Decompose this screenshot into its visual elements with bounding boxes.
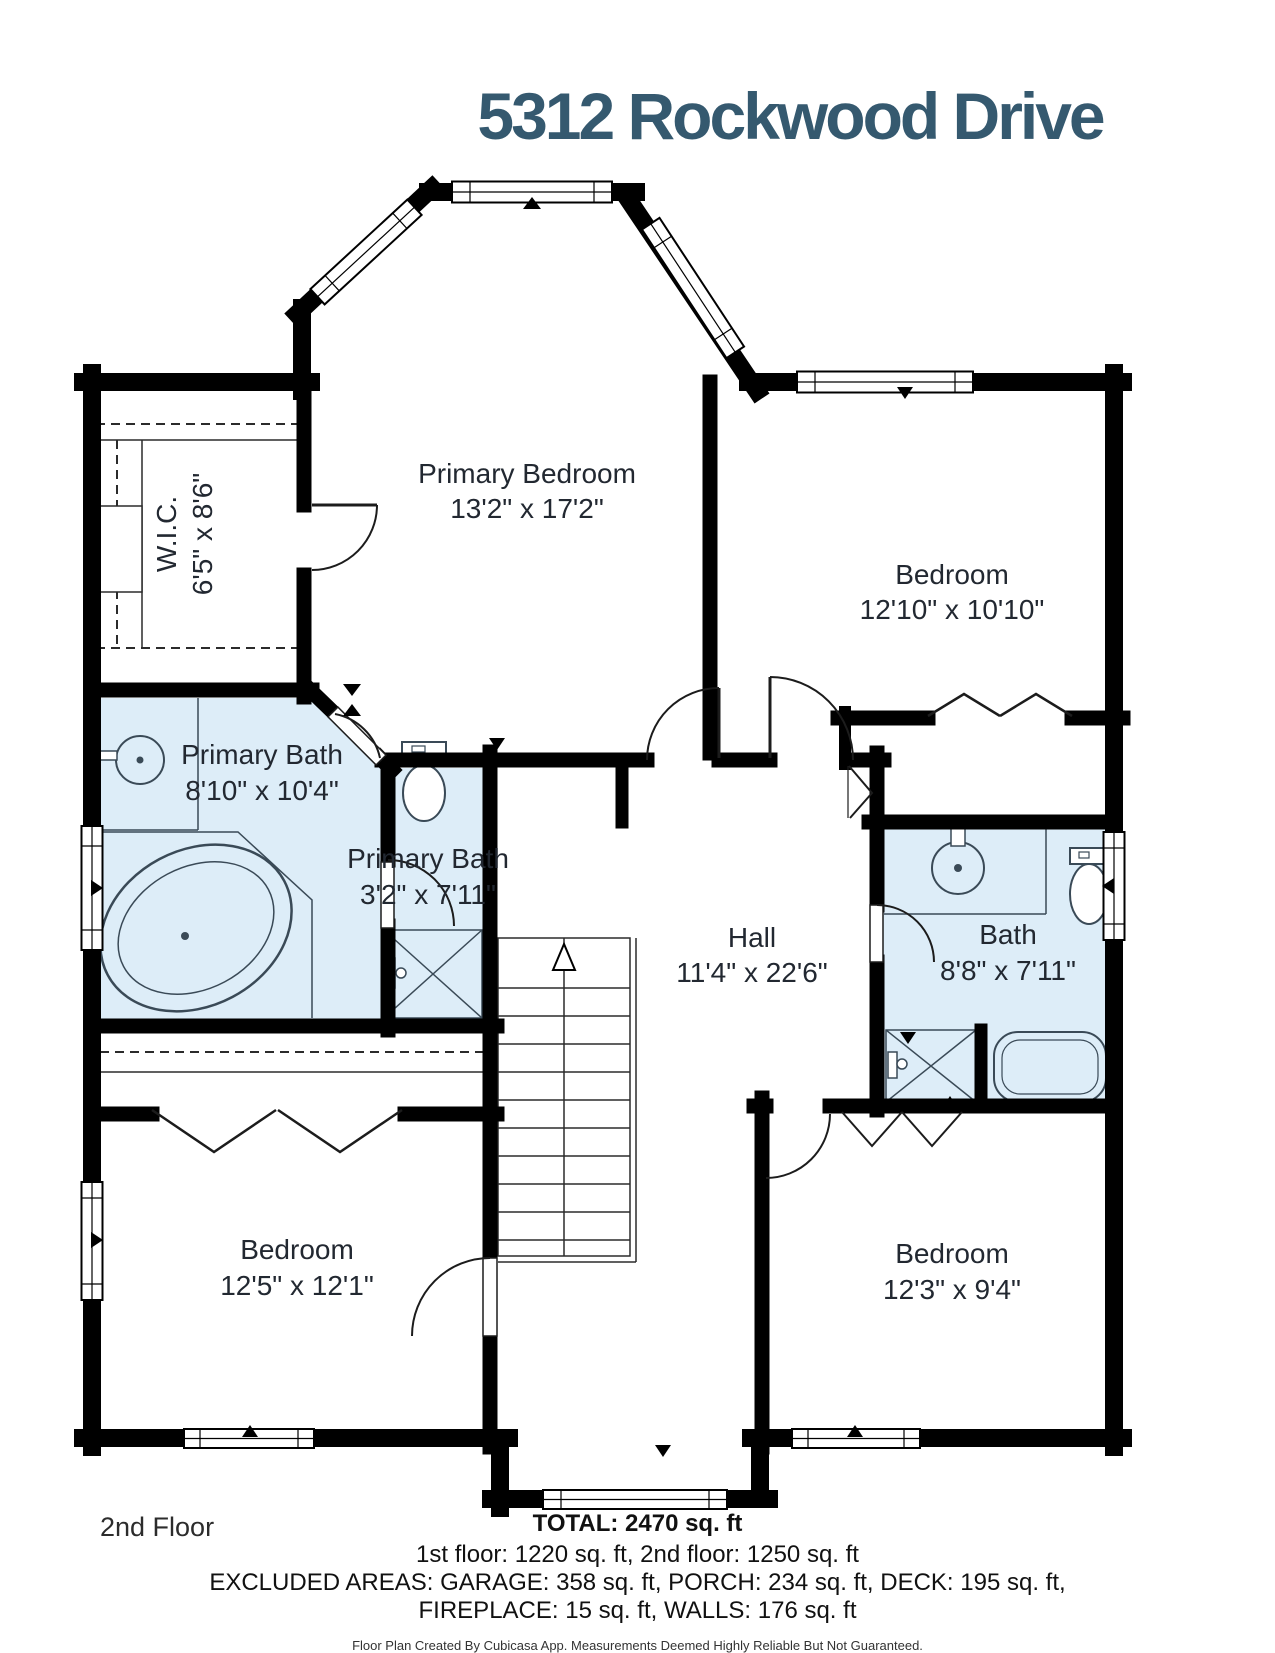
- room-label-bath: Bath: [979, 919, 1037, 950]
- window-bay-left: [310, 200, 421, 305]
- closet-doors-bedroom-bl: [152, 1110, 402, 1152]
- room-dims-bedroom-tr: 12'10" x 10'10": [860, 594, 1045, 625]
- door-wic: [312, 505, 377, 570]
- excluded-areas-1: EXCLUDED AREAS: GARAGE: 358 sq. ft, PORC…: [0, 1571, 1275, 1595]
- room-label-primary-bath: Primary Bath: [181, 739, 343, 770]
- disclaimer: Floor Plan Created By Cubicasa App. Meas…: [0, 1639, 1275, 1652]
- room-dims-hall: 11'4" x 22'6": [676, 957, 827, 988]
- toilet-icon: [1070, 864, 1108, 924]
- staircase: [498, 938, 636, 1262]
- room-dims-primary-bath2: 3'2" x 7'11": [360, 879, 496, 910]
- bifold-door: [848, 766, 872, 818]
- window-bay-right: [642, 218, 744, 358]
- stairs-up-arrow-icon: [553, 944, 575, 970]
- room-label-wic: W.I.C.: [151, 496, 182, 572]
- closet-doors-bedroom-tr: [928, 694, 1072, 716]
- room-dims-primary-bath: 8'10" x 10'4": [185, 775, 339, 806]
- room-dims-bath: 8'8" x 7'11": [940, 955, 1076, 986]
- room-label-bedroom-bl: Bedroom: [240, 1234, 354, 1265]
- shower-valve-icon: [888, 1052, 897, 1078]
- room-label-hall: Hall: [728, 922, 776, 953]
- room-label-bedroom-br: Bedroom: [895, 1238, 1009, 1269]
- closet-doors-bedroom-br: [842, 1112, 962, 1146]
- floor-areas: 1st floor: 1220 sq. ft, 2nd floor: 1250 …: [0, 1543, 1275, 1567]
- room-label-primary-bedroom: Primary Bedroom: [418, 458, 636, 489]
- window-hall-bottom: [543, 1490, 727, 1509]
- room-dims-bedroom-bl: 12'5" x 12'1": [220, 1270, 374, 1301]
- closet-band: [100, 1052, 488, 1072]
- door-bedroom-br: [766, 1114, 830, 1178]
- area-summary: TOTAL: 2470 sq. ft 1st floor: 1220 sq. f…: [0, 1512, 1275, 1652]
- room-label-bedroom-tr: Bedroom: [895, 559, 1009, 590]
- window-bedroom-tr-top: [797, 372, 973, 393]
- excluded-areas-2: FIREPLACE: 15 sq. ft, WALLS: 176 sq. ft: [0, 1599, 1275, 1623]
- floor-plan: Primary Bedroom 13'2" x 17'2" W.I.C. 6'5…: [0, 0, 1275, 1650]
- door-bedroom-bl: [412, 1258, 497, 1336]
- room-dims-primary-bedroom: 13'2" x 17'2": [450, 493, 604, 524]
- total-area: TOTAL: 2470 sq. ft: [0, 1512, 1275, 1536]
- toilet-icon: [403, 765, 445, 821]
- room-dims-bedroom-br: 12'3" x 9'4": [883, 1274, 1021, 1305]
- faucet-icon: [951, 828, 965, 846]
- room-label-primary-bath2: Primary Bath: [347, 843, 509, 874]
- room-dims-wic: 6'5" x 8'6": [187, 473, 218, 595]
